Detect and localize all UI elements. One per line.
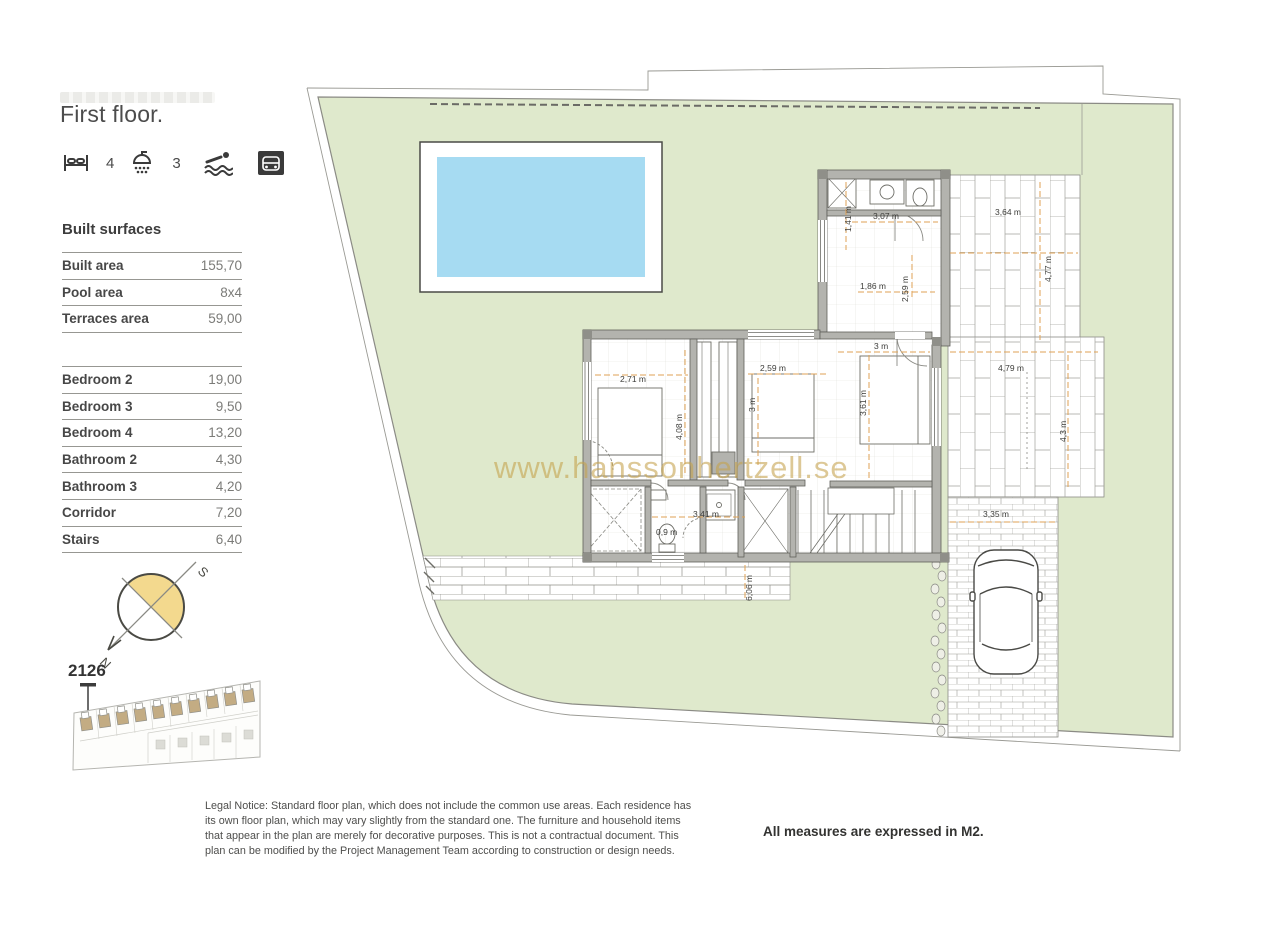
- table-row: Bathroom 2 4,30: [62, 446, 242, 473]
- dim-label: 3 m: [747, 398, 757, 412]
- row-label: Built area: [62, 258, 124, 273]
- terrace-top: [948, 175, 1080, 345]
- measures-note: All measures are expressed in M2.: [763, 824, 984, 839]
- dim-label: 3,35 m: [983, 509, 1009, 519]
- dim-label: 2,59 m: [900, 276, 910, 302]
- row-value: 4,20: [216, 479, 242, 494]
- dim-label: 4,77 m: [1043, 256, 1053, 282]
- dim-label: 1,41 m: [843, 206, 853, 232]
- shower-icon: [128, 150, 156, 176]
- watermark: www.hanssonhertzell.se: [493, 450, 849, 485]
- table-row: Corridor 7,20: [62, 499, 242, 526]
- table-row: Pool area 8x4: [62, 279, 242, 306]
- dim-label: 3,61 m: [858, 390, 868, 416]
- dim-label: 4,3 m: [1058, 421, 1068, 442]
- row-value: 4,30: [216, 452, 242, 467]
- walkway: [423, 556, 790, 600]
- table-row: Bedroom 4 13,20: [62, 419, 242, 446]
- floor-plan-page: 1,41 m 3,07 m 3,64 m 4,77 m 1,86 m 2,59 …: [0, 0, 1280, 933]
- bed-icon: [62, 151, 90, 175]
- site-plan: 2126: [68, 661, 260, 770]
- row-label: Bathroom 3: [62, 479, 137, 494]
- table-row: Bathroom 3 4,20: [62, 472, 242, 499]
- elevator-shaft: [742, 489, 788, 553]
- dim-label: 3,07 m: [873, 211, 899, 221]
- swimming-pool: [420, 142, 662, 292]
- compass: S N: [97, 562, 212, 672]
- unit-number: 2126: [68, 661, 106, 680]
- dim-label: 6,06 m: [744, 575, 754, 601]
- row-value: 6,40: [216, 532, 242, 547]
- table-row: Stairs 6,40: [62, 526, 242, 554]
- dim-label: 4,79 m: [998, 363, 1024, 373]
- table-row: Terraces area 59,00: [62, 305, 242, 333]
- dim-label: 1,86 m: [860, 281, 886, 291]
- pool-icon: [203, 150, 233, 176]
- car: [970, 550, 1042, 674]
- dim-label: 3,64 m: [995, 207, 1021, 217]
- table-row: Built area 155,70: [62, 252, 242, 279]
- row-label: Stairs: [62, 532, 100, 547]
- wc-sink: [650, 490, 666, 500]
- dim-label: 2,59 m: [760, 363, 786, 373]
- toilet: [906, 180, 934, 206]
- row-label: Bedroom 2: [62, 372, 133, 387]
- row-label: Terraces area: [62, 311, 149, 326]
- table-row: Bedroom 2 19,00: [62, 366, 242, 393]
- page-title: First floor.: [60, 101, 163, 128]
- row-value: 9,50: [216, 399, 242, 414]
- bed-bedroom4: [860, 356, 930, 444]
- bed-count: 4: [106, 155, 114, 172]
- dim-label: 0,9 m: [656, 527, 677, 537]
- vanity: [870, 180, 904, 204]
- row-label: Bedroom 4: [62, 425, 133, 440]
- row-value: 19,00: [208, 372, 242, 387]
- row-label: Corridor: [62, 505, 116, 520]
- compass-south-label: S: [195, 564, 212, 581]
- row-value: 155,70: [201, 258, 242, 273]
- table-row: Bedroom 3 9,50: [62, 393, 242, 420]
- dim-label: 3 m: [874, 341, 888, 351]
- bed-bedroom3: [752, 374, 814, 452]
- dim-label: 3,41 m: [693, 509, 719, 519]
- garage-icon: [257, 150, 285, 176]
- row-label: Pool area: [62, 285, 123, 300]
- row-value: 59,00: [208, 311, 242, 326]
- amenities-row: 4 3: [62, 150, 285, 176]
- dim-label: 2,71 m: [620, 374, 646, 384]
- rooms-table: Bedroom 2 19,00 Bedroom 3 9,50 Bedroom 4…: [62, 366, 242, 553]
- row-label: Bathroom 2: [62, 452, 137, 467]
- dim-label: 4,08 m: [674, 414, 684, 440]
- built-surfaces-heading: Built surfaces: [62, 221, 161, 238]
- shower-count: 3: [172, 155, 180, 172]
- row-value: 13,20: [208, 425, 242, 440]
- built-surfaces-table: Built area 155,70 Pool area 8x4 Terraces…: [62, 252, 242, 333]
- row-value: 8x4: [220, 285, 242, 300]
- row-value: 7,20: [216, 505, 242, 520]
- legal-notice: Legal Notice: Standard floor plan, which…: [205, 799, 697, 859]
- row-label: Bedroom 3: [62, 399, 133, 414]
- terrace-right: [948, 337, 1104, 497]
